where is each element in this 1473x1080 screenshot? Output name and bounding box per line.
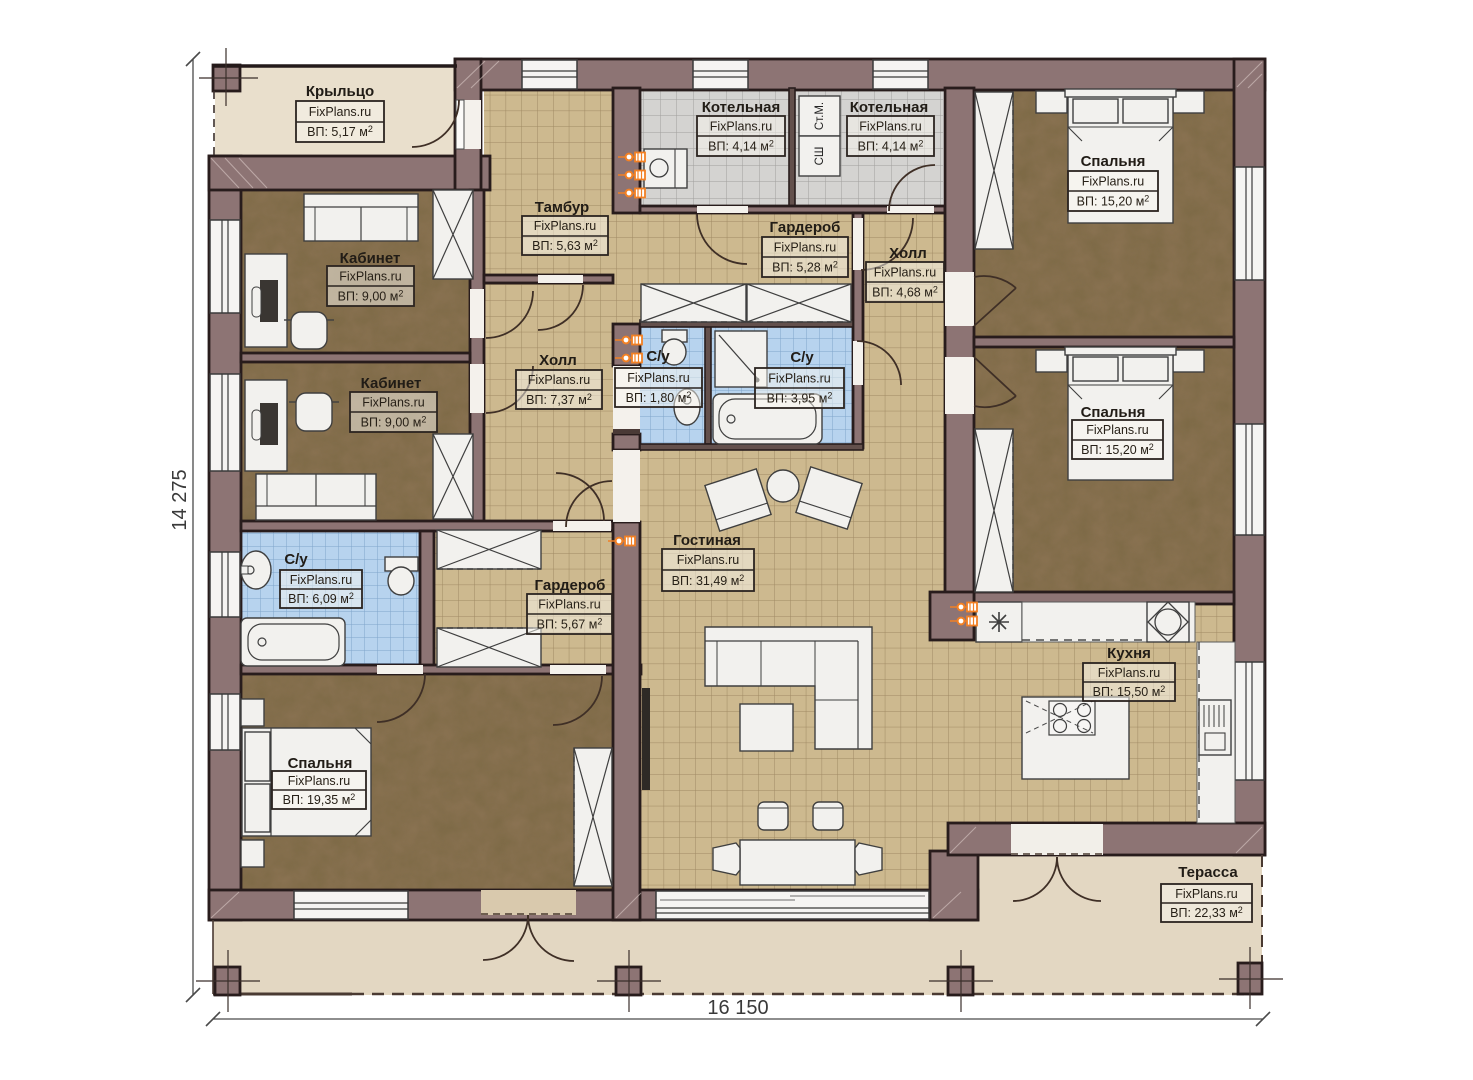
svg-text:FixPlans.ru: FixPlans.ru (627, 371, 690, 385)
svg-text:FixPlans.ru: FixPlans.ru (528, 373, 591, 387)
svg-text:ВП: 1,80 м2: ВП: 1,80 м2 (626, 390, 692, 405)
svg-text:Холл: Холл (539, 352, 577, 369)
svg-text:Тамбур: Тамбур (535, 199, 589, 216)
svg-text:FixPlans.ru: FixPlans.ru (534, 219, 597, 233)
svg-text:ВП: 31,49 м2: ВП: 31,49 м2 (672, 573, 745, 588)
svg-text:Котельная: Котельная (850, 99, 929, 116)
svg-text:ВП: 6,09 м2: ВП: 6,09 м2 (288, 591, 354, 606)
svg-text:С/у: С/у (646, 348, 670, 365)
svg-text:ВП: 9,00 м2: ВП: 9,00 м2 (361, 415, 427, 430)
svg-text:Гардероб: Гардероб (770, 219, 841, 236)
svg-text:FixPlans.ru: FixPlans.ru (339, 270, 402, 284)
svg-text:FixPlans.ru: FixPlans.ru (710, 120, 773, 134)
svg-text:14 275: 14 275 (169, 469, 191, 530)
svg-text:ВП: 7,37 м2: ВП: 7,37 м2 (526, 392, 592, 407)
svg-text:Кабинет: Кабинет (361, 375, 422, 392)
svg-text:ВП: 4,14 м2: ВП: 4,14 м2 (708, 139, 774, 154)
svg-text:ВП: 5,28 м2: ВП: 5,28 м2 (772, 260, 838, 275)
svg-text:FixPlans.ru: FixPlans.ru (874, 266, 937, 280)
svg-text:Котельная: Котельная (702, 99, 781, 116)
svg-text:ВП: 15,20 м2: ВП: 15,20 м2 (1081, 442, 1154, 457)
svg-text:ВП: 4,14 м2: ВП: 4,14 м2 (858, 139, 924, 154)
svg-text:FixPlans.ru: FixPlans.ru (768, 372, 831, 386)
svg-text:ВП: 9,00 м2: ВП: 9,00 м2 (338, 289, 404, 304)
svg-text:FixPlans.ru: FixPlans.ru (859, 120, 922, 134)
svg-text:ВП: 5,67 м2: ВП: 5,67 м2 (537, 617, 603, 632)
svg-text:FixPlans.ru: FixPlans.ru (1098, 666, 1161, 680)
svg-text:ВП: 4,68 м2: ВП: 4,68 м2 (872, 285, 938, 300)
svg-text:Гардероб: Гардероб (535, 577, 606, 594)
svg-text:FixPlans.ru: FixPlans.ru (288, 774, 351, 788)
svg-text:С/у: С/у (790, 349, 814, 366)
svg-text:ВП: 5,63 м2: ВП: 5,63 м2 (532, 238, 598, 253)
svg-text:Терасса: Терасса (1178, 864, 1238, 881)
svg-text:FixPlans.ru: FixPlans.ru (677, 553, 740, 567)
svg-text:Спальня: Спальня (288, 755, 353, 772)
svg-text:FixPlans.ru: FixPlans.ru (1086, 423, 1149, 437)
svg-text:FixPlans.ru: FixPlans.ru (774, 241, 837, 255)
svg-text:FixPlans.ru: FixPlans.ru (362, 396, 425, 410)
svg-text:FixPlans.ru: FixPlans.ru (309, 105, 372, 119)
svg-text:Крыльцо: Крыльцо (306, 83, 374, 100)
svg-text:ВП: 19,35 м2: ВП: 19,35 м2 (283, 792, 356, 807)
svg-text:ВП: 22,33 м2: ВП: 22,33 м2 (1170, 905, 1243, 920)
svg-text:Ст.М.: Ст.М. (814, 102, 826, 130)
svg-text:Спальня: Спальня (1081, 404, 1146, 421)
svg-text:ВП: 3,95 м2: ВП: 3,95 м2 (767, 391, 833, 406)
svg-text:FixPlans.ru: FixPlans.ru (290, 573, 353, 587)
svg-text:Кухня: Кухня (1107, 645, 1151, 662)
svg-text:FixPlans.ru: FixPlans.ru (538, 598, 601, 612)
svg-text:ВП: 15,20 м2: ВП: 15,20 м2 (1077, 194, 1150, 209)
svg-text:ВП: 5,17 м2: ВП: 5,17 м2 (307, 124, 373, 139)
svg-text:ВП: 15,50 м2: ВП: 15,50 м2 (1093, 684, 1166, 699)
svg-text:С/у: С/у (284, 551, 308, 568)
svg-text:Спальня: Спальня (1081, 153, 1146, 170)
svg-text:FixPlans.ru: FixPlans.ru (1175, 887, 1238, 901)
svg-text:Гостиная: Гостиная (673, 532, 741, 549)
svg-text:FixPlans.ru: FixPlans.ru (1082, 175, 1145, 189)
svg-text:Холл: Холл (889, 245, 927, 262)
svg-text:Кабинет: Кабинет (340, 250, 401, 267)
svg-text:16 150: 16 150 (707, 997, 768, 1019)
svg-text:СШ: СШ (814, 147, 826, 166)
